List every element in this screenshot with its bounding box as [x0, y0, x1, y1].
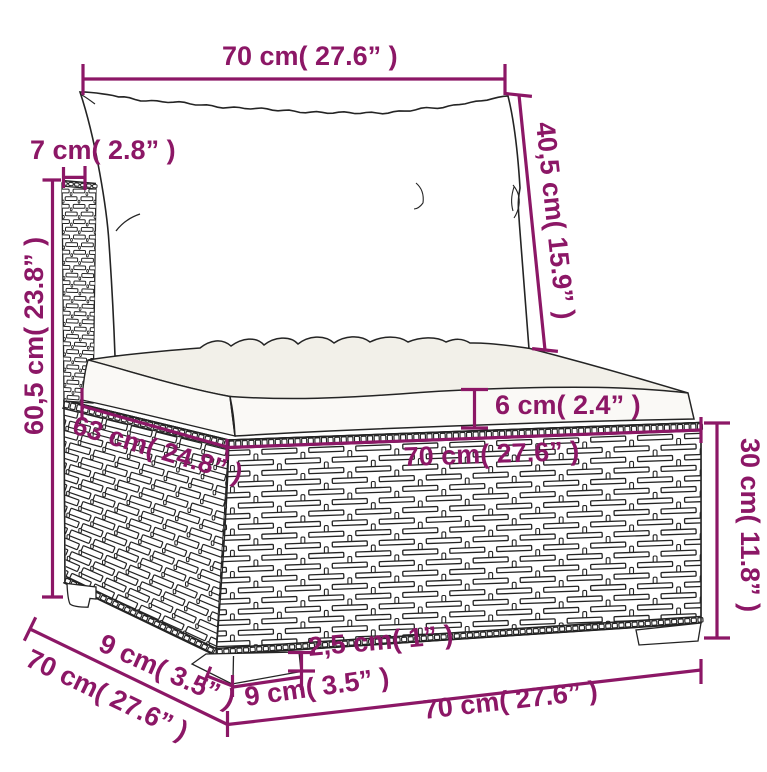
svg-text:7 cm( 2.8” ): 7 cm( 2.8” ) [30, 135, 176, 165]
svg-text:70 cm( 27.6” ): 70 cm( 27.6” ) [222, 41, 398, 71]
svg-text:30 cm( 11.8” ): 30 cm( 11.8” ) [735, 438, 765, 612]
svg-text:6 cm( 2.4” ): 6 cm( 2.4” ) [495, 390, 641, 420]
svg-text:70 cm( 27.6” ): 70 cm( 27.6” ) [403, 436, 580, 472]
svg-text:60,5 cm( 23.8” ): 60,5 cm( 23.8” ) [19, 237, 49, 435]
